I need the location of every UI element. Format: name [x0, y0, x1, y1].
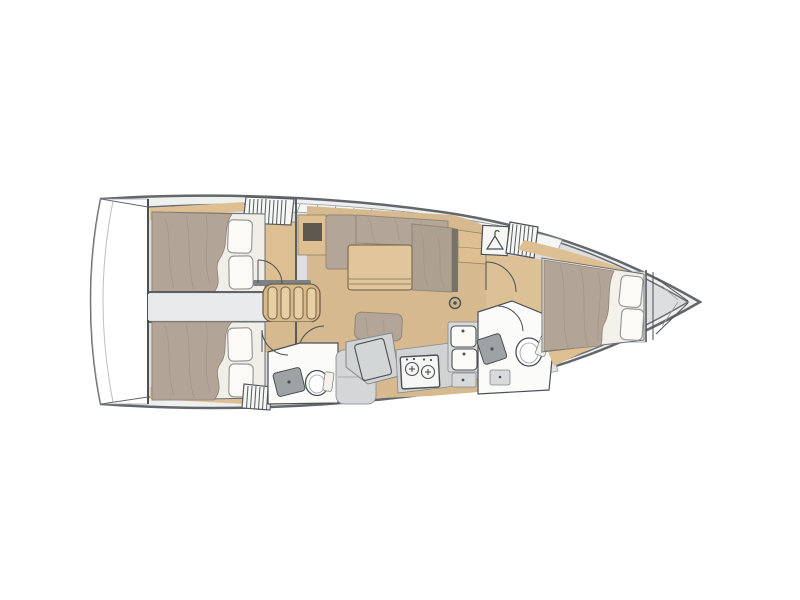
hanging-locker: [481, 225, 508, 255]
saloon-table: [348, 245, 412, 290]
aft-head-faucet-dot: [287, 380, 290, 383]
yacht-floor-plan-canvas: [0, 0, 800, 600]
forward-head-faucet-dot: [490, 347, 493, 350]
mid-lockers: [481, 222, 538, 258]
swim-platform: [91, 199, 148, 404]
locker-knob-dot: [462, 379, 465, 382]
vanity-knob-dot: [499, 376, 502, 379]
saloon-cabinet-opening: [303, 223, 322, 241]
port-berth-pillow-1: [227, 220, 252, 254]
sink-faucet-dot-2: [463, 353, 466, 356]
v-berth-pillow-2: [620, 308, 644, 340]
sink-basin-2: [452, 349, 477, 370]
sofa-edge-strip: [452, 228, 458, 292]
yacht-floor-plan: [0, 0, 800, 600]
v-berth-pillow-1: [618, 275, 643, 308]
sink-basin-1: [451, 326, 476, 347]
starboard-berth-pillow-1: [227, 328, 252, 362]
mast-center-dot: [453, 301, 457, 305]
port-berth-pillow-2: [229, 256, 254, 289]
aft-port-cabin: [148, 197, 310, 292]
sofa-right-cushion: [412, 224, 452, 292]
sink-faucet-dot-1: [462, 330, 465, 333]
